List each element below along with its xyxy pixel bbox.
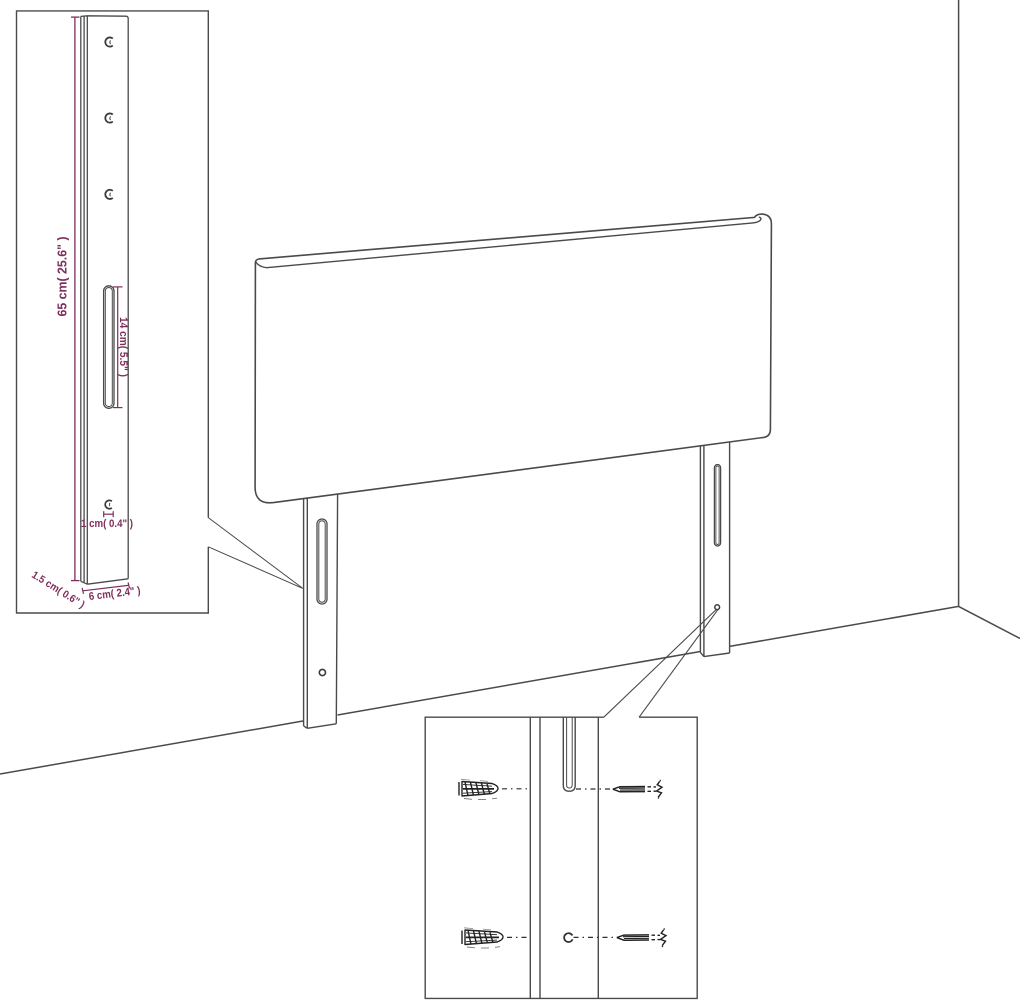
svg-text:1 cm( 0.4" ): 1 cm( 0.4" ) [81, 518, 133, 530]
svg-text:65 cm( 25.6" ): 65 cm( 25.6" ) [55, 237, 70, 317]
svg-text:6 cm( 2.4" ): 6 cm( 2.4" ) [88, 585, 141, 603]
svg-text:14 cm( 5.5" ): 14 cm( 5.5" ) [117, 317, 129, 377]
svg-text:1.5 cm( 0.6" ): 1.5 cm( 0.6" ) [29, 569, 86, 611]
